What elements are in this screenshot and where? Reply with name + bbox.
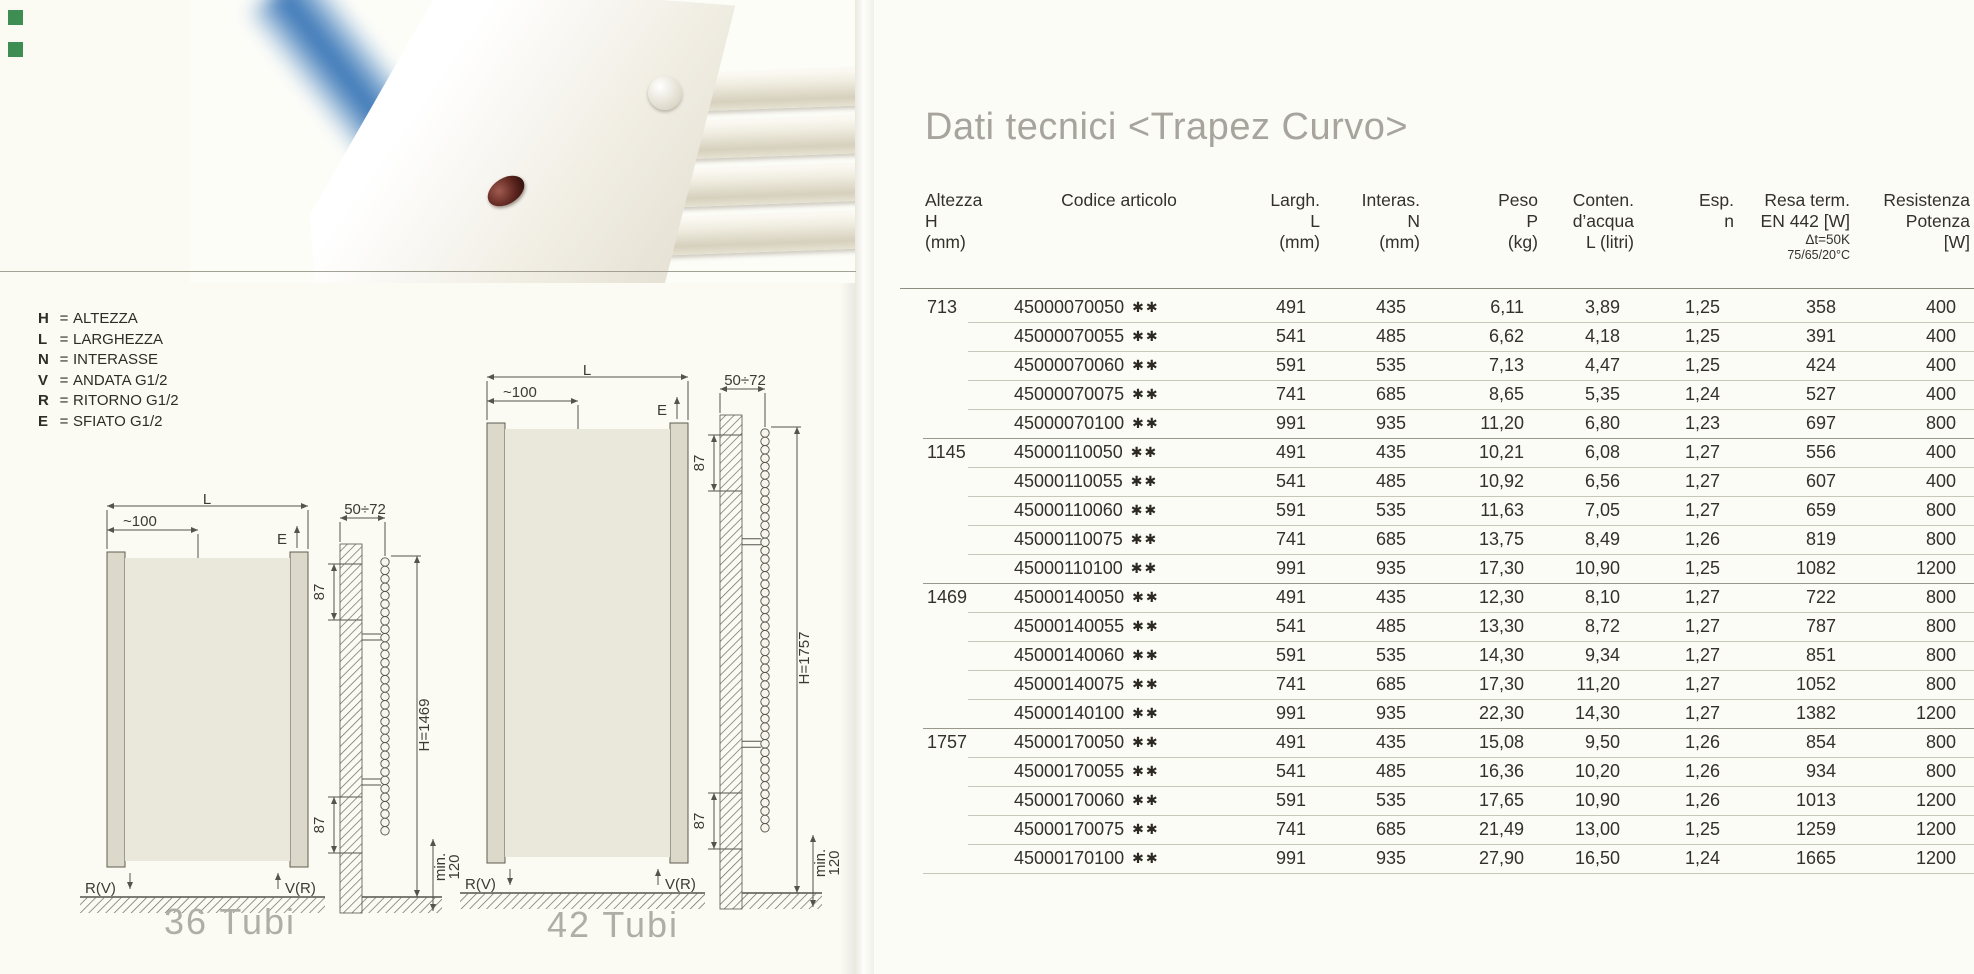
- esp-cell: 1,27: [1634, 670, 1734, 700]
- potenza-cell: 800: [1850, 728, 1970, 758]
- header-line: 75/65/20°C: [1787, 248, 1850, 262]
- radiator-body: [505, 429, 670, 857]
- acqua-cell: 6,80: [1538, 409, 1634, 439]
- header-line: (mm): [1379, 232, 1420, 253]
- tube-section: [761, 597, 769, 605]
- resa-cell: 851: [1734, 641, 1850, 671]
- legend-value: SFIATO G1/2: [73, 413, 162, 430]
- esp-cell: 1,24: [1634, 844, 1734, 874]
- stars-mark: ✱✱: [1132, 647, 1159, 663]
- code-cell: 45000110075✱✱: [1010, 525, 1228, 555]
- largh-cell: 741: [1228, 670, 1320, 700]
- peso-cell: 21,49: [1420, 815, 1538, 845]
- largh-cell: 591: [1228, 786, 1320, 816]
- stars-mark: ✱✱: [1131, 502, 1158, 518]
- code-cell: 45000170060✱✱: [1010, 786, 1228, 816]
- col-header-larghezza: Largh. L (mm): [1228, 190, 1320, 290]
- tube-section: [761, 807, 769, 815]
- tube-section: [381, 667, 389, 675]
- legend-key: E: [38, 412, 55, 433]
- interas-cell: 935: [1320, 844, 1420, 874]
- peso-cell: 14,30: [1420, 641, 1538, 671]
- tube-section: [761, 479, 769, 487]
- legend-value: ANDATA G1/2: [73, 372, 167, 389]
- dim-label-E: E: [277, 531, 287, 548]
- equals-sign: =: [55, 330, 73, 351]
- esp-cell: 1,27: [1634, 583, 1734, 613]
- tube-section: [761, 731, 769, 739]
- interas-cell: 485: [1320, 467, 1420, 497]
- row-divider: [968, 554, 1974, 555]
- dim-label-120: 120: [826, 850, 843, 875]
- stars-mark: ✱✱: [1131, 560, 1158, 576]
- tube-section: [381, 583, 389, 591]
- row-divider: [968, 467, 1974, 468]
- photo-divider-line: [0, 271, 856, 272]
- peso-cell: 12,30: [1420, 583, 1538, 613]
- resa-cell: 854: [1734, 728, 1850, 758]
- col-header-resa-termica: Resa term. EN 442 [W] Δt=50K 75/65/20°C: [1734, 190, 1850, 290]
- esp-cell: 1,26: [1634, 728, 1734, 758]
- code-cell: 45000070055✱✱: [1010, 322, 1228, 352]
- largh-cell: 991: [1228, 699, 1320, 729]
- largh-cell: 491: [1228, 438, 1320, 468]
- potenza-cell: 400: [1850, 322, 1970, 352]
- col-header-resistenza: Resistenza Potenza [W]: [1850, 190, 1970, 290]
- legend-item: R=RITORNO G1/2: [38, 391, 179, 412]
- potenza-cell: 400: [1850, 380, 1970, 410]
- acqua-cell: 3,89: [1538, 293, 1634, 323]
- stars-mark: ✱✱: [1132, 705, 1159, 721]
- legend-item: N=INTERASSE: [38, 350, 179, 371]
- legend-key: N: [38, 350, 55, 371]
- code-cell: 45000110050✱✱: [1010, 438, 1228, 468]
- dim-label-100: ~100: [123, 513, 157, 530]
- resa-cell: 1259: [1734, 815, 1850, 845]
- height-cell: [925, 380, 1010, 410]
- height-cell: [925, 844, 1010, 874]
- code-cell: 45000170055✱✱: [1010, 757, 1228, 787]
- row-divider: [968, 815, 1974, 816]
- largh-cell: 991: [1228, 554, 1320, 584]
- height-cell: 713: [925, 293, 1010, 323]
- technical-drawing-36-tubi: L ~100 E 50÷72 87 87 H=1469 min. 120 R(V…: [85, 492, 470, 922]
- return-label: R(V): [85, 880, 116, 897]
- radiator-cap: [648, 76, 682, 110]
- tube-section: [381, 785, 389, 793]
- largh-cell: 591: [1228, 351, 1320, 381]
- table-row: 45000170055✱✱54148516,3610,201,26934800: [925, 757, 1970, 786]
- dim-label-100: ~100: [503, 384, 537, 401]
- peso-cell: 17,65: [1420, 786, 1538, 816]
- peso-cell: 11,63: [1420, 496, 1538, 526]
- esp-cell: 1,27: [1634, 438, 1734, 468]
- tube-section: [381, 575, 389, 583]
- table-row: 45000070060✱✱5915357,134,471,25424400: [925, 351, 1970, 380]
- height-cell: [925, 757, 1010, 787]
- largh-cell: 591: [1228, 641, 1320, 671]
- esp-cell: 1,26: [1634, 786, 1734, 816]
- esp-cell: 1,25: [1634, 293, 1734, 323]
- col-header-altezza: Altezza H (mm): [925, 190, 1010, 290]
- article-code: 45000070060: [1014, 355, 1124, 375]
- tube-section: [381, 801, 389, 809]
- row-divider: [968, 409, 1974, 410]
- resa-cell: 1013: [1734, 786, 1850, 816]
- resa-cell: 1052: [1734, 670, 1850, 700]
- tube-section: [761, 572, 769, 580]
- dim-label-L: L: [203, 491, 211, 508]
- acqua-cell: 11,20: [1538, 670, 1634, 700]
- article-code: 45000110100: [1014, 558, 1123, 578]
- header-line: d’acqua: [1573, 211, 1634, 232]
- right-rail: [670, 423, 688, 863]
- tube-section: [761, 530, 769, 538]
- largh-cell: 491: [1228, 583, 1320, 613]
- stars-mark: ✱✱: [1132, 589, 1159, 605]
- article-code: 45000140050: [1014, 587, 1124, 607]
- largh-cell: 741: [1228, 525, 1320, 555]
- col-header-esponente: Esp. n: [1634, 190, 1734, 290]
- article-code: 45000170060: [1014, 790, 1124, 810]
- interas-cell: 535: [1320, 786, 1420, 816]
- resa-cell: 424: [1734, 351, 1850, 381]
- code-cell: 45000140075✱✱: [1010, 670, 1228, 700]
- resa-cell: 1665: [1734, 844, 1850, 874]
- tube-section: [381, 827, 389, 835]
- tube-section: [761, 513, 769, 521]
- row-divider: [968, 699, 1974, 700]
- tube-section: [381, 600, 389, 608]
- dim-label-87-top: 87: [311, 584, 328, 601]
- potenza-cell: 800: [1850, 641, 1970, 671]
- corner-marker: [8, 10, 23, 25]
- table-row: 45000110075✱✱74168513,758,491,26819800: [925, 525, 1970, 554]
- resa-cell: 787: [1734, 612, 1850, 642]
- table-row: 45000170060✱✱59153517,6510,901,261013120…: [925, 786, 1970, 815]
- largh-cell: 541: [1228, 467, 1320, 497]
- header-line: L: [1310, 211, 1320, 232]
- header-line: Peso: [1498, 190, 1538, 211]
- table-row: 45000140060✱✱59153514,309,341,27851800: [925, 641, 1970, 670]
- supply-label: V(R): [285, 880, 316, 897]
- tube-section: [761, 689, 769, 697]
- row-divider: [968, 844, 1974, 845]
- header-line: (kg): [1508, 232, 1538, 253]
- header-line: n: [1724, 211, 1734, 232]
- peso-cell: 17,30: [1420, 670, 1538, 700]
- height-cell: [925, 670, 1010, 700]
- peso-cell: 10,21: [1420, 438, 1538, 468]
- row-divider: [968, 351, 1974, 352]
- legend-key: H: [38, 309, 55, 330]
- stars-mark: ✱✱: [1132, 850, 1159, 866]
- interas-cell: 435: [1320, 728, 1420, 758]
- esp-cell: 1,27: [1634, 496, 1734, 526]
- code-cell: 45000140060✱✱: [1010, 641, 1228, 671]
- height-cell: 1145: [925, 438, 1010, 468]
- equals-sign: =: [55, 391, 73, 412]
- article-code: 45000110055: [1014, 471, 1123, 491]
- tube-section: [381, 625, 389, 633]
- code-cell: 45000170050✱✱: [1010, 728, 1228, 758]
- article-code: 45000070075: [1014, 384, 1124, 404]
- tube-section: [381, 684, 389, 692]
- stars-mark: ✱✱: [1132, 792, 1159, 808]
- stars-mark: ✱✱: [1131, 473, 1158, 489]
- esp-cell: 1,27: [1634, 612, 1734, 642]
- legend-value: RITORNO G1/2: [73, 392, 179, 409]
- tube-section: [381, 759, 389, 767]
- code-cell: 45000070050✱✱: [1010, 293, 1228, 323]
- dim-label-L: L: [583, 362, 591, 379]
- esp-cell: 1,27: [1634, 467, 1734, 497]
- header-line: [W]: [1944, 232, 1970, 253]
- code-cell: 45000140055✱✱: [1010, 612, 1228, 642]
- dim-label-height: H=1757: [796, 632, 813, 685]
- header-line: (mm): [1279, 232, 1320, 253]
- legend-item: L=LARGHEZZA: [38, 330, 179, 351]
- dim-label-87-bottom: 87: [311, 817, 328, 834]
- header-line: Potenza: [1906, 211, 1970, 232]
- tube-section: [761, 815, 769, 823]
- col-header-contenuto-acqua: Conten. d’acqua L (litri): [1538, 190, 1634, 290]
- tube-section: [761, 504, 769, 512]
- tube-section: [761, 538, 769, 546]
- row-divider: [923, 438, 1974, 439]
- drawing-caption-36-tubi: 36 Tubi: [115, 901, 345, 943]
- header-line: Interas.: [1362, 190, 1420, 211]
- header-line: P: [1526, 211, 1538, 232]
- table-row: 146945000140050✱✱49143512,308,101,277228…: [925, 583, 1970, 612]
- interas-cell: 685: [1320, 380, 1420, 410]
- interas-cell: 435: [1320, 293, 1420, 323]
- legend-key: L: [38, 330, 55, 351]
- tube-section: [761, 681, 769, 689]
- tube-section: [381, 818, 389, 826]
- radiator-body: [125, 558, 290, 861]
- peso-cell: 16,36: [1420, 757, 1538, 787]
- article-code: 45000070055: [1014, 326, 1124, 346]
- header-line: H: [925, 211, 938, 232]
- corner-marker: [8, 42, 23, 57]
- tube-section: [381, 701, 389, 709]
- code-cell: 45000070075✱✱: [1010, 380, 1228, 410]
- tube-section: [761, 546, 769, 554]
- tube-section: [761, 656, 769, 664]
- peso-cell: 13,75: [1420, 525, 1538, 555]
- table-row: 45000070075✱✱7416858,655,351,24527400: [925, 380, 1970, 409]
- tube-section: [761, 605, 769, 613]
- row-divider: [968, 525, 1974, 526]
- tube-section: [381, 566, 389, 574]
- tube-section: [381, 558, 389, 566]
- tube-section: [761, 765, 769, 773]
- height-cell: 1757: [925, 728, 1010, 758]
- row-divider: [923, 728, 1974, 729]
- potenza-cell: 1200: [1850, 554, 1970, 584]
- stars-mark: ✱✱: [1132, 357, 1159, 373]
- acqua-cell: 10,90: [1538, 786, 1634, 816]
- peso-cell: 8,65: [1420, 380, 1538, 410]
- row-divider: [923, 583, 1974, 584]
- potenza-cell: 800: [1850, 409, 1970, 439]
- height-cell: [925, 815, 1010, 845]
- stars-mark: ✱✱: [1132, 763, 1159, 779]
- resa-cell: 1082: [1734, 554, 1850, 584]
- tube-section: [381, 734, 389, 742]
- interas-cell: 435: [1320, 438, 1420, 468]
- peso-cell: 7,13: [1420, 351, 1538, 381]
- tube-section: [761, 647, 769, 655]
- header-line: EN 442 [W]: [1761, 211, 1850, 232]
- dim-label-wall-depth: 50÷72: [724, 372, 766, 389]
- interas-cell: 685: [1320, 670, 1420, 700]
- tube-section: [381, 675, 389, 683]
- interas-cell: 535: [1320, 641, 1420, 671]
- legend-item: V=ANDATA G1/2: [38, 371, 179, 392]
- tube-section: [381, 608, 389, 616]
- stars-mark: ✱✱: [1132, 821, 1159, 837]
- tube-section: [381, 709, 389, 717]
- technical-data-table: Altezza H (mm) Codice articolo Largh. L …: [925, 190, 1970, 874]
- dim-label-87-top: 87: [691, 455, 708, 472]
- table-row: 45000070055✱✱5414856,624,181,25391400: [925, 322, 1970, 351]
- potenza-cell: 1200: [1850, 786, 1970, 816]
- acqua-cell: 8,10: [1538, 583, 1634, 613]
- interas-cell: 935: [1320, 699, 1420, 729]
- table-row: 45000110055✱✱54148510,926,561,27607400: [925, 467, 1970, 496]
- legend-item: E=SFIATO G1/2: [38, 412, 179, 433]
- esp-cell: 1,25: [1634, 351, 1734, 381]
- tube-section: [381, 768, 389, 776]
- article-code: 45000140060: [1014, 645, 1124, 665]
- code-cell: 45000070100✱✱: [1010, 409, 1228, 439]
- peso-cell: 17,30: [1420, 554, 1538, 584]
- potenza-cell: 400: [1850, 467, 1970, 497]
- header-line: Resa term.: [1764, 190, 1850, 211]
- acqua-cell: 14,30: [1538, 699, 1634, 729]
- largh-cell: 541: [1228, 757, 1320, 787]
- table-row: 45000110060✱✱59153511,637,051,27659800: [925, 496, 1970, 525]
- interas-cell: 685: [1320, 525, 1420, 555]
- tube-section: [761, 790, 769, 798]
- code-cell: 45000170100✱✱: [1010, 844, 1228, 874]
- equals-sign: =: [55, 350, 73, 371]
- table-row: 45000170075✱✱74168521,4913,001,251259120…: [925, 815, 1970, 844]
- tube-section: [761, 639, 769, 647]
- potenza-cell: 1200: [1850, 815, 1970, 845]
- stars-mark: ✱✱: [1132, 734, 1159, 750]
- interas-cell: 535: [1320, 351, 1420, 381]
- interas-cell: 485: [1320, 757, 1420, 787]
- wall-hatch: [340, 544, 362, 913]
- acqua-cell: 9,34: [1538, 641, 1634, 671]
- row-divider: [968, 786, 1974, 787]
- interas-cell: 935: [1320, 554, 1420, 584]
- peso-cell: 27,90: [1420, 844, 1538, 874]
- legend-value: ALTEZZA: [73, 310, 138, 327]
- right-rail: [290, 552, 308, 867]
- largh-cell: 991: [1228, 409, 1320, 439]
- tube-section: [761, 446, 769, 454]
- interas-cell: 435: [1320, 583, 1420, 613]
- tube-section: [761, 496, 769, 504]
- article-code: 45000170075: [1014, 819, 1124, 839]
- tube-section: [761, 429, 769, 437]
- interas-cell: 485: [1320, 322, 1420, 352]
- potenza-cell: 800: [1850, 757, 1970, 787]
- stars-mark: ✱✱: [1132, 415, 1159, 431]
- tube-section: [761, 588, 769, 596]
- article-code: 45000110060: [1014, 500, 1123, 520]
- tube-section: [761, 706, 769, 714]
- potenza-cell: 800: [1850, 583, 1970, 613]
- resa-cell: 722: [1734, 583, 1850, 613]
- left-rail: [107, 552, 125, 867]
- height-cell: 1469: [925, 583, 1010, 613]
- side-floor-hatch: [742, 893, 822, 909]
- table-header: Altezza H (mm) Codice articolo Largh. L …: [925, 190, 1970, 290]
- wall-hatch: [720, 415, 742, 909]
- stars-mark: ✱✱: [1131, 531, 1158, 547]
- row-divider: [968, 757, 1974, 758]
- tube-section: [761, 672, 769, 680]
- drawing-caption-42-tubi: 42 Tubi: [498, 904, 728, 946]
- header-line: L (litri): [1586, 232, 1634, 253]
- radiator-photo: [190, 0, 855, 283]
- tube-section: [761, 756, 769, 764]
- resa-cell: 527: [1734, 380, 1850, 410]
- potenza-cell: 800: [1850, 670, 1970, 700]
- resa-cell: 659: [1734, 496, 1850, 526]
- dim-label-87-bottom: 87: [691, 813, 708, 830]
- tube-section: [761, 773, 769, 781]
- esp-cell: 1,26: [1634, 525, 1734, 555]
- acqua-cell: 9,50: [1538, 728, 1634, 758]
- dimension-legend: H=ALTEZZA L=LARGHEZZA N=INTERASSE V=ANDA…: [38, 309, 179, 432]
- table-row: 45000140055✱✱54148513,308,721,27787800: [925, 612, 1970, 641]
- header-line: Esp.: [1699, 190, 1734, 211]
- return-label: R(V): [465, 876, 496, 893]
- legend-key: V: [38, 371, 55, 392]
- tube-section: [761, 748, 769, 756]
- peso-cell: 11,20: [1420, 409, 1538, 439]
- code-cell: 45000140050✱✱: [1010, 583, 1228, 613]
- side-floor-hatch: [362, 897, 442, 913]
- interas-cell: 535: [1320, 496, 1420, 526]
- code-cell: 45000140100✱✱: [1010, 699, 1228, 729]
- code-cell: 45000070060✱✱: [1010, 351, 1228, 381]
- acqua-cell: 4,18: [1538, 322, 1634, 352]
- row-divider: [968, 322, 1974, 323]
- peso-cell: 13,30: [1420, 612, 1538, 642]
- header-line: Δt=50K: [1805, 232, 1850, 248]
- acqua-cell: 8,72: [1538, 612, 1634, 642]
- header-line: Largh.: [1270, 190, 1320, 211]
- technical-drawing-42-tubi: L ~100 E 50÷72 87 87 H=1757 min. 120 R(V…: [465, 353, 850, 918]
- height-cell: [925, 786, 1010, 816]
- tube-section: [381, 591, 389, 599]
- table-row: 71345000070050✱✱4914356,113,891,25358400: [925, 293, 1970, 322]
- potenza-cell: 1200: [1850, 844, 1970, 874]
- article-code: 45000140075: [1014, 674, 1124, 694]
- esp-cell: 1,27: [1634, 699, 1734, 729]
- largh-cell: 491: [1228, 728, 1320, 758]
- table-row: 175745000170050✱✱49143515,089,501,268548…: [925, 728, 1970, 757]
- resa-cell: 1382: [1734, 699, 1850, 729]
- tube-section: [761, 782, 769, 790]
